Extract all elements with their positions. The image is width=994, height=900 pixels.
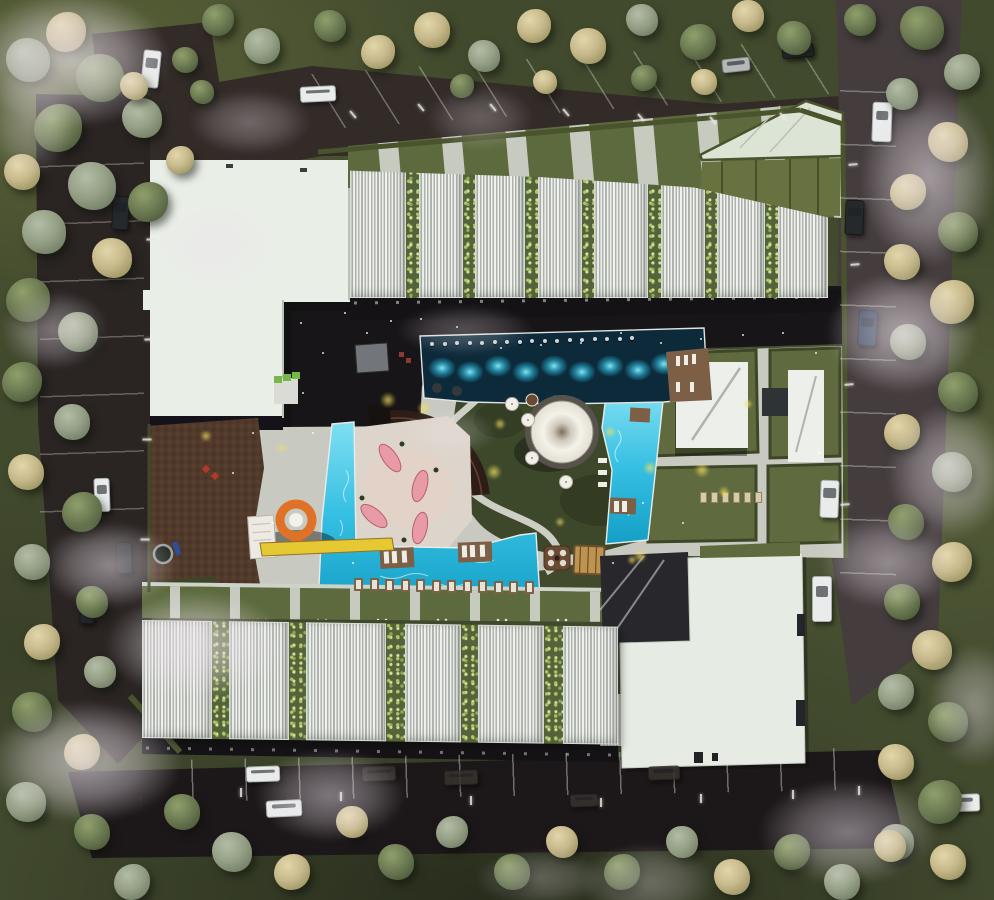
planter-strip [461,624,478,742]
louver-roof-panel [229,621,289,740]
louver-roof-panel [405,624,461,743]
firepit-lounge [544,546,570,570]
louver-roof-panel [594,168,648,298]
south-terrace-band [142,582,618,622]
pergola [574,545,605,574]
planter-strip [525,168,538,298]
dark-court [762,388,788,416]
louver-roof-panel [419,168,463,298]
louver-roof-panel [475,168,525,298]
planter-strip [648,168,661,298]
planter-strip [463,168,475,298]
west-plaza [148,418,264,598]
louver-roof-panel [563,626,618,745]
lounger-platform [354,416,472,552]
aerial-site-render [0,0,994,900]
site-svg [0,0,994,900]
pool-deck-island [458,541,493,562]
planter-strip [289,622,306,740]
clubhouse-b [788,370,824,462]
louver-roof-panel [478,625,544,744]
louver-roof-panel [350,168,406,298]
louver-roof-panel [306,622,386,741]
round-feature [154,545,172,563]
louver-roof-panel [538,168,582,298]
louver-roof-panel [142,620,212,739]
pool-kiosk [355,343,389,373]
planter-strip [544,626,563,744]
planter-strip [386,623,405,741]
planter-strip [406,168,419,298]
south-louver-row [142,620,618,745]
swimup-deck [666,348,712,402]
planter-strip [212,621,229,739]
planter-strip [582,168,594,298]
